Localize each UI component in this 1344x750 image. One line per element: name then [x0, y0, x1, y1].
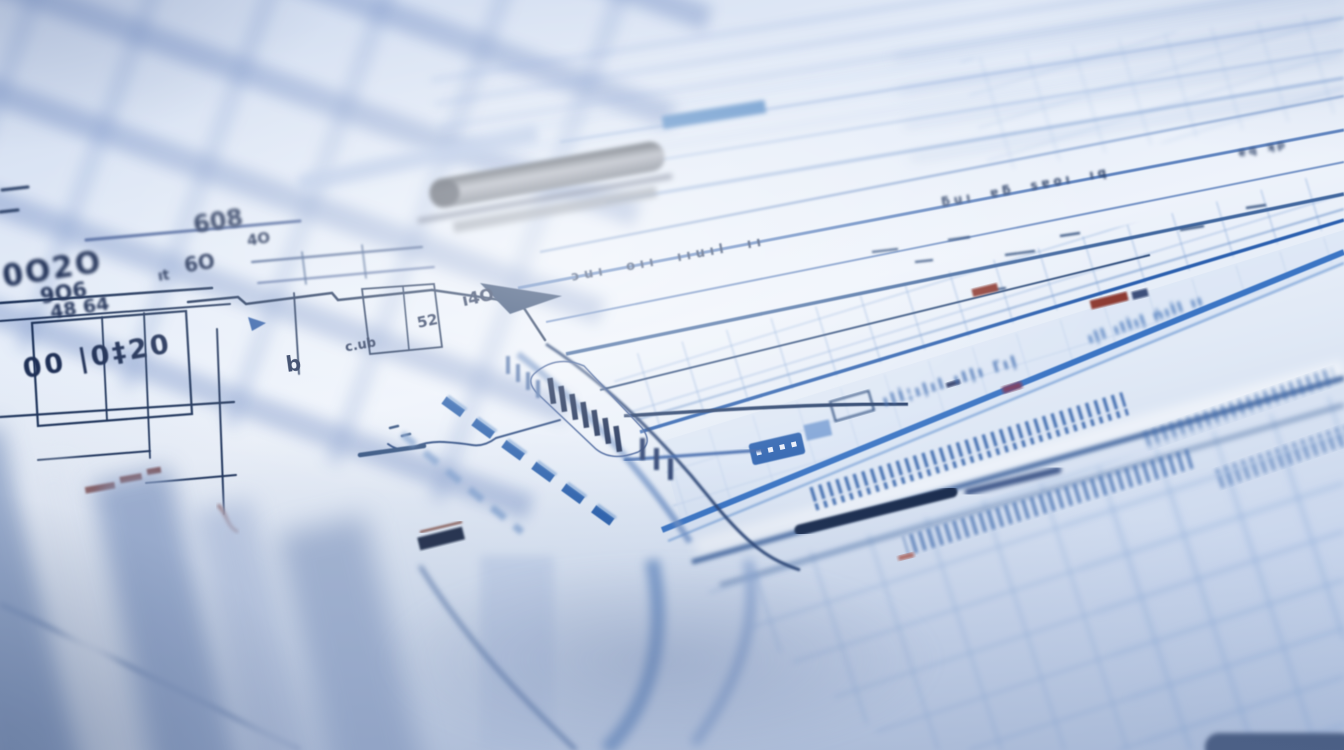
blueprint-photo: 0O2O 9O6 48 64 608 6O 4O ıt 00 |0‡20 b c… [0, 0, 1344, 750]
numeral-60: 6O [182, 249, 216, 278]
ink-arrow [248, 317, 266, 331]
pencil-tip [428, 178, 462, 209]
corner-tab [1205, 733, 1344, 750]
numeral-40: 4O [246, 228, 272, 249]
bottom-soft-shadow [380, 560, 940, 750]
numeral-it: ıt [157, 267, 171, 285]
label-b: b [284, 351, 302, 377]
schematic-lines [0, 284, 560, 514]
